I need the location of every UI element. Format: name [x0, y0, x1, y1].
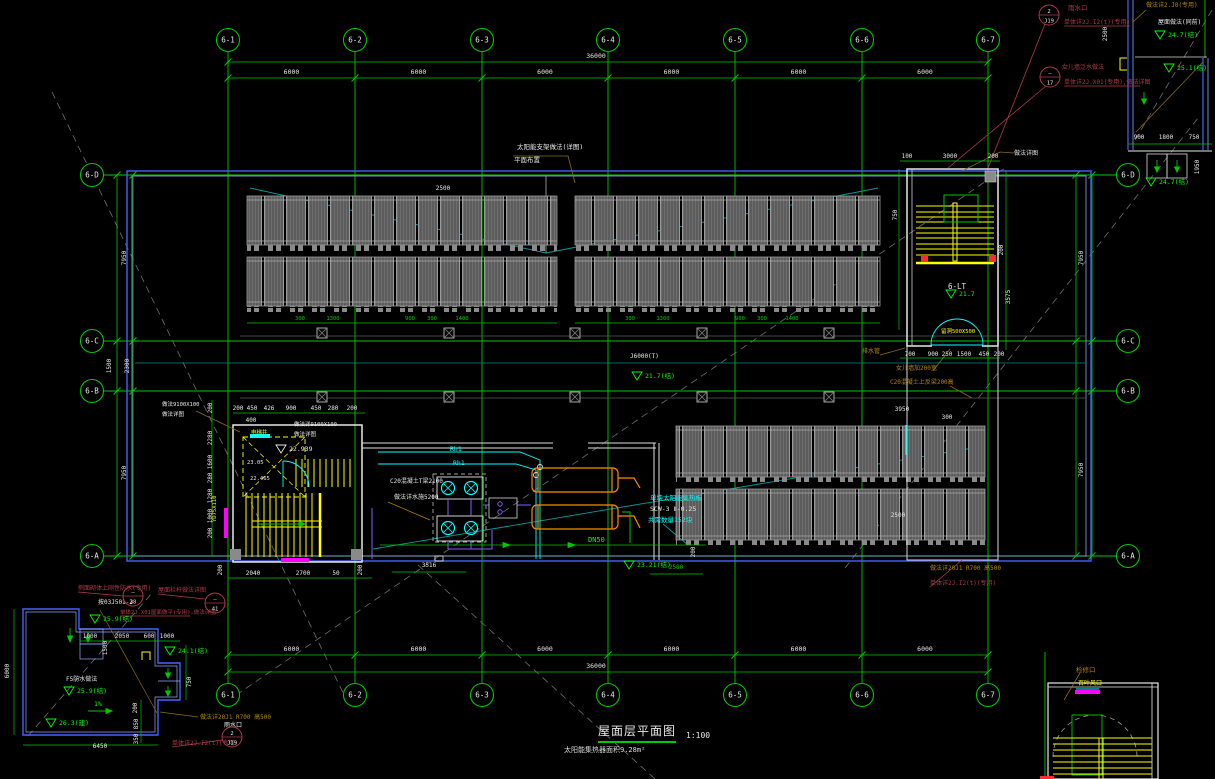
dim-text: 2500: [669, 564, 684, 571]
axis-bubble-label: 6-2: [348, 691, 362, 700]
dim-text: 3516: [422, 562, 437, 569]
annotation-text: Rh1: [450, 445, 462, 453]
axis-bubble-label: 6-C: [1121, 337, 1135, 346]
dim-text: 7950: [1078, 462, 1085, 477]
dim-text: 1000: [160, 633, 175, 640]
dim-text: 1950: [1194, 159, 1201, 174]
annotation-text: 做法详图: [1014, 149, 1038, 157]
dim-text: 36000: [586, 52, 606, 60]
annotation-text: 留洞500X500: [941, 327, 975, 335]
annotation-text: J6000(T): [630, 353, 659, 360]
detail-number: 2: [1047, 9, 1050, 15]
annotation-text: SCW-3 Ⅱ-0.25: [650, 505, 696, 513]
dim-text: 6000: [537, 645, 553, 653]
dim-text: 2040: [246, 570, 261, 577]
dim-text: 7950: [1078, 250, 1085, 265]
dim-text: 1400: [785, 316, 798, 322]
panel-mounting-feet: [247, 306, 557, 312]
dim-text: 2050: [115, 633, 130, 640]
axis-bubble-label: 6-A: [1121, 552, 1135, 561]
dim-text: 6000: [411, 645, 427, 653]
annotation-text: 女儿墙泛水做法: [1062, 63, 1104, 71]
cad-viewport[interactable]: 6-16-1600060006-26-2600060006-36-3600060…: [0, 0, 1215, 779]
dim-text: 2500: [891, 512, 906, 519]
dim-text: 1400: [455, 316, 468, 322]
axis-bubble-label: 6-B: [1121, 387, 1135, 396]
dim-text: 2700: [296, 570, 311, 577]
axis-bubble-label: 6-1: [221, 691, 235, 700]
dim-text: 6000: [664, 645, 680, 653]
dim-text: 750: [892, 209, 899, 220]
dim-text: 200: [217, 564, 224, 575]
dim-text: 1500: [102, 640, 109, 655]
annotation-text: 单体详2J.I2(t)(专用): [930, 579, 996, 587]
annotation-text: 22.465: [250, 476, 270, 482]
solar-panel-block: [575, 257, 880, 312]
dim-text: 200: [207, 527, 214, 538]
annotation-text: 做法9100X100: [162, 400, 200, 408]
annotation-text: 电梯井: [251, 428, 268, 436]
annotation-text: 雨水口: [224, 721, 242, 729]
elevation-text: 21.7: [959, 290, 975, 298]
dim-text: 1300: [656, 316, 669, 322]
dim-text: 3575: [1005, 289, 1012, 304]
dim-text: 200: [233, 405, 244, 412]
dim-text: 7950: [121, 465, 128, 480]
solar-panel-block: [676, 489, 985, 546]
detail-number: 2: [230, 731, 233, 737]
elevation-text: 26.3(建): [59, 718, 89, 727]
dim-text: 200: [207, 402, 214, 413]
roof-pier: [444, 328, 454, 338]
dim-text: 300: [427, 316, 437, 322]
dim-text: 1000: [83, 633, 98, 640]
dim-text: 280: [328, 405, 339, 412]
axis-bubble-label: 6-B: [85, 387, 99, 396]
dim-text: 200: [998, 244, 1005, 255]
dim-text: 6450: [93, 743, 108, 750]
panel-mounting-feet: [247, 245, 557, 251]
panel-mounting-feet: [575, 245, 880, 251]
axis-bubble-label: 6-2: [348, 36, 362, 45]
dim-text: 200: [690, 546, 697, 557]
annotation-text: 单体详2J.X01(专用),做法详图: [1064, 78, 1151, 86]
axis-bubble-label: 6-C: [85, 337, 99, 346]
axis-bubble-label: 6-1: [221, 36, 235, 45]
axis-bubble-label: 6-6: [855, 36, 869, 45]
axis-bubble-label: 6-4: [601, 36, 615, 45]
drawing-title: 屋面层平面图: [598, 722, 676, 743]
dim-text: 300: [757, 316, 767, 322]
panel-mounting-feet: [676, 477, 985, 483]
annotation-text: 做法详20J1 R700 高500: [200, 713, 271, 721]
dim-text: 250: [942, 351, 953, 358]
drawing-note: 太阳能集热器面积9.28m²: [564, 745, 780, 755]
dim-text: 850: [133, 718, 140, 729]
dim-text: 3000: [943, 153, 958, 160]
dim-text: 450: [247, 405, 258, 412]
dim-text: 1500: [957, 351, 972, 358]
detail-sheet: 17: [1047, 81, 1054, 87]
detail-sheet: J19: [1044, 19, 1054, 25]
elevation-text: 25.9(结): [103, 614, 133, 623]
elevation-text: 22.939: [289, 445, 313, 453]
solar-panel-block: [676, 426, 985, 483]
roof-pier: [317, 392, 327, 402]
annotation-text: 做法详图: [162, 410, 185, 418]
dim-text: 2500: [1102, 26, 1109, 41]
dim-text: 6000: [284, 68, 300, 76]
annotation-text: 单体详2J.I2(t)(专用): [1064, 18, 1130, 26]
elevation-text: 25.1(结): [1177, 63, 1207, 72]
axis-bubble-label: 6-D: [85, 171, 99, 180]
dim-text: 1800: [1159, 134, 1174, 141]
dim-text: 900: [405, 316, 415, 322]
solar-panel-block: [247, 257, 557, 312]
dim-text: 2280: [207, 430, 214, 445]
axis-bubble-label: 6-6: [855, 691, 869, 700]
dim-text: 600: [144, 633, 155, 640]
dim-text: 200: [988, 153, 999, 160]
dim-text: 900: [286, 405, 297, 412]
roof-pier: [697, 328, 707, 338]
dim-text: 280: [207, 472, 214, 483]
annotation-text: 排水管: [862, 347, 880, 355]
annotation-text: DN50: [588, 536, 605, 544]
dim-text: 6000: [664, 68, 680, 76]
roof-pier: [570, 392, 580, 402]
roof-pier: [317, 328, 327, 338]
dim-text: 100: [902, 153, 913, 160]
dim-text: 750: [1189, 134, 1200, 141]
dim-text: 6000: [537, 68, 553, 76]
panel-mounting-feet: [575, 306, 880, 312]
solar-panel-block: [575, 196, 880, 251]
detail-sheet: 41: [212, 607, 219, 613]
dim-text: 900: [928, 351, 939, 358]
annotation-text: 单块太阳能集热板: [650, 493, 703, 502]
roof-pier: [697, 392, 707, 402]
elevation-text: 24.7(结): [1168, 30, 1198, 39]
annotation-text: 雨水口: [1068, 3, 1088, 12]
dim-text: 900: [735, 316, 745, 322]
annotation-text: 侧面砌体上刚性防水(专用): [78, 584, 151, 592]
dim-text: 450: [979, 351, 990, 358]
annotation-text: 检修口: [1076, 665, 1096, 674]
dim-text: 450: [311, 405, 322, 412]
elevation-text: 23.21(结): [637, 560, 671, 569]
dim-text: 6000: [4, 663, 11, 678]
dim-text: 36000: [586, 662, 606, 670]
annotation-text: 做法详图: [294, 430, 317, 438]
annotation-text: C20混凝土T梁2100: [390, 477, 443, 485]
dim-text: 6000: [791, 68, 807, 76]
dim-text: 200: [994, 351, 1005, 358]
annotation-text: 做法详9100X100: [294, 420, 337, 428]
elevation-text: 24.7(结): [1159, 177, 1189, 186]
annotation-text: 做法详水施5200: [394, 493, 439, 501]
detail-sheet: J19: [227, 741, 237, 747]
dim-text: 200: [132, 702, 139, 713]
axis-bubble-label: 6-7: [981, 691, 995, 700]
annotation-text: YD75X110: [212, 496, 218, 523]
annotation-text: 太阳能支架做法(详图): [517, 142, 583, 151]
annotation-text: 1%: [94, 700, 102, 708]
roof-pier: [444, 392, 454, 402]
annotation-text: 做法详20J1 R700 高500: [930, 564, 1001, 572]
dim-text: 6000: [791, 645, 807, 653]
dim-text: 300: [942, 414, 953, 421]
dim-text: 350: [133, 733, 140, 744]
background: [0, 0, 1215, 779]
axis-bubble-label: 6-3: [475, 36, 489, 45]
dim-text: 1500: [106, 358, 113, 373]
axis-bubble-label: 6-A: [85, 552, 99, 561]
elevation-text: 21.7(结): [645, 371, 675, 380]
axis-bubble-label: 6-7: [981, 36, 995, 45]
annotation-text: 共需数量152块: [648, 515, 693, 524]
dim-text: 3950: [895, 406, 910, 413]
dim-text: 426: [264, 405, 275, 412]
dim-text: 1600: [207, 454, 214, 469]
annotation-text: 百叶风口: [1078, 679, 1102, 687]
axis-bubble-label: 6-4: [601, 691, 615, 700]
axis-bubble-label: 6-5: [728, 691, 742, 700]
annotation-text: 女儿墙加200宽: [896, 364, 937, 372]
panel-mounting-feet: [676, 540, 985, 546]
dim-text: 6000: [917, 68, 933, 76]
roof-plan-drawing: 6-16-1600060006-26-2600060006-36-3600060…: [0, 0, 1215, 779]
drawing-scale: 1:100: [686, 731, 710, 743]
axis-bubble-label: 6-D: [1121, 171, 1135, 180]
dim-text: 300: [295, 316, 305, 322]
solar-panel-block: [247, 196, 557, 251]
detail-sheet: 38: [130, 600, 137, 606]
annotation-text: F5防水做法: [66, 675, 97, 683]
dim-text: 300: [625, 316, 635, 322]
dim-text: 50: [332, 570, 340, 577]
dim-text: 2300: [124, 358, 131, 373]
annotation-text: 做法详2.J0(专用): [1146, 1, 1198, 9]
dim-text: 7950: [121, 250, 128, 265]
annotation-text: 屋面栏杆做法详图: [158, 586, 206, 594]
axis-bubble-label: 6-3: [475, 691, 489, 700]
elevation-text: 24.1(结): [178, 646, 208, 655]
dim-text: 200: [357, 564, 364, 575]
dim-text: 6000: [917, 645, 933, 653]
roof-pier: [824, 328, 834, 338]
dim-text: 2500: [436, 185, 451, 192]
dim-text: 200: [347, 405, 358, 412]
annotation-text: 平面布置: [514, 155, 541, 164]
axis-bubble-label: 6-5: [728, 36, 742, 45]
annotation-text: C20混凝土上反梁200高: [890, 378, 954, 386]
dim-text: 6000: [284, 645, 300, 653]
annotation-text: 单体2J.X01屋面做平(专用),做法详图: [120, 608, 216, 616]
dim-text: 700: [905, 351, 916, 358]
roof-pier: [824, 392, 834, 402]
dim-text: 900: [1134, 134, 1145, 141]
annotation-text: 23.05: [247, 460, 264, 466]
dim-text: 750: [186, 676, 193, 687]
annotation-text: 屋面做法(同前): [1158, 18, 1201, 26]
annotation-text: Rh1: [453, 459, 465, 467]
roof-pier: [570, 328, 580, 338]
dim-text: 400: [246, 417, 257, 424]
dim-text: 1300: [326, 316, 339, 322]
elevation-text: 25.9(结): [77, 686, 107, 695]
drawing-title-block: 屋面层平面图 1:100 太阳能集热器面积9.28m²: [560, 722, 780, 755]
dim-text: 6000: [411, 68, 427, 76]
